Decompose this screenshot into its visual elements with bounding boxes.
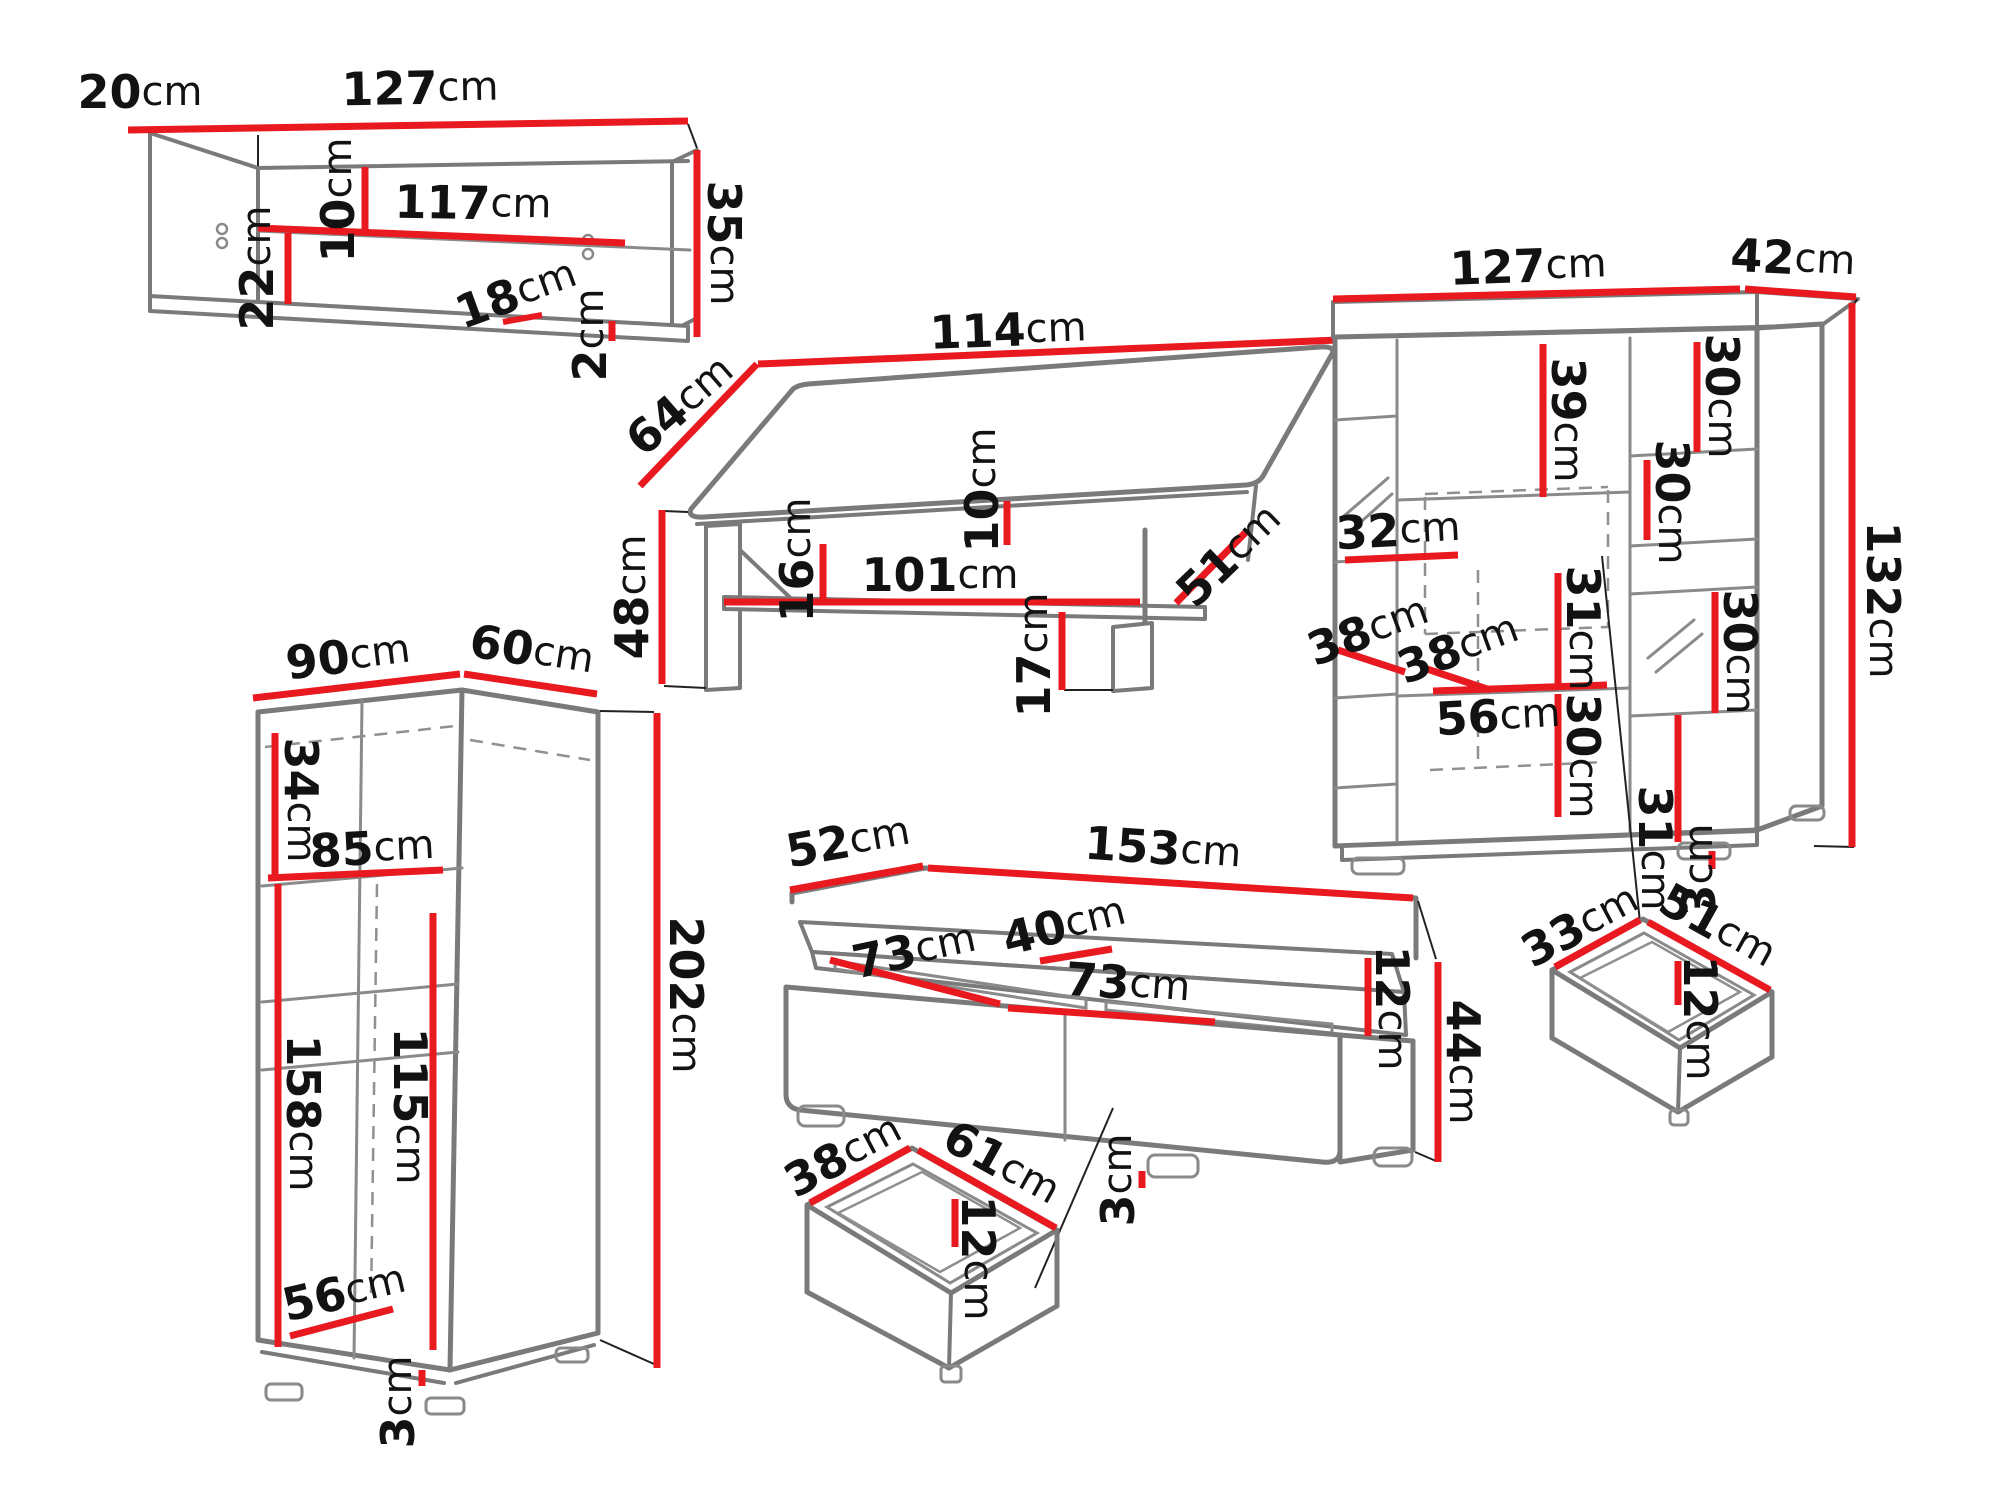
coffee-table-shelf-clearance-label: 16cm: [770, 498, 824, 623]
drawer-right-front: [1552, 1038, 1678, 1112]
bookcase-depth-label: 42cm: [1729, 228, 1857, 288]
bookcase: 127cm 42cm 132cm 39cm 30cm 30cm 32cm 38c…: [1300, 228, 1910, 932]
bookcase-30-lower-label: 30cm: [1556, 694, 1610, 819]
coffee-table: 114cm 64cm 48cm 16cm 101cm 10cm 51cm 17c…: [605, 300, 1338, 717]
hidden-line: [371, 884, 377, 1300]
extension-line: [1415, 1152, 1436, 1161]
wardrobe-door-split: [354, 701, 362, 1358]
wall-shelf: 20cm 127cm 117cm 10cm 22cm 35cm 18cm 2cm: [78, 60, 751, 382]
bookcase-30-right-label: 30cm: [1713, 590, 1767, 715]
tv-stand-foot: [1148, 1155, 1198, 1177]
furniture-dimensions-diagram: 20cm 127cm 117cm 10cm 22cm 35cm 18cm 2cm…: [0, 0, 2000, 1500]
hidden-line: [470, 740, 590, 760]
wardrobe-front-corner-edge: [450, 690, 462, 1370]
coffee-table-width-label: 114cm: [929, 300, 1088, 359]
extension-line: [664, 686, 706, 688]
wall-shelf-depth-label: 20cm: [78, 65, 203, 119]
coffee-table-shelf-depth-label: 51cm: [1165, 492, 1292, 618]
wall-shelf-width-label: 127cm: [341, 60, 499, 117]
extension-line: [664, 511, 688, 512]
extension-line: [688, 124, 697, 148]
drawer-left-height-label: 12cm: [951, 1196, 1005, 1321]
drawer-left: 38cm 61cm 12cm: [775, 1102, 1070, 1382]
wall-shelf-right-panel: [672, 150, 697, 331]
extension-line: [1418, 901, 1436, 959]
coffee-table-right-leg: [1113, 623, 1152, 691]
wardrobe-foot: [266, 1384, 302, 1400]
tv-stand-height-label: 44cm: [1436, 1000, 1490, 1125]
wardrobe-foot: [426, 1398, 464, 1414]
wall-shelf-height-label: 35cm: [697, 181, 751, 306]
extension-line: [1814, 846, 1854, 847]
wall-shelf-thickness-label: 2cm: [563, 289, 617, 382]
bookcase-side-panel: [1757, 324, 1822, 830]
wall-shelf-bottom-clearance-label: 22cm: [230, 206, 284, 331]
wall-shelf-inner-width-label: 117cm: [394, 175, 552, 232]
drawer-right-height-label: 12cm: [1673, 956, 1727, 1081]
coffee-table-leg-height-label: 17cm: [1007, 593, 1061, 718]
bookcase-31-mid-label: 31cm: [1556, 566, 1610, 691]
wardrobe-height-label: 202cm: [659, 917, 713, 1074]
bookcase-30-top-label: 30cm: [1695, 334, 1749, 459]
wardrobe: 90cm 60cm 34cm 85cm 158cm 115cm 56cm 3cm…: [253, 614, 713, 1449]
coffee-table-top-thickness-label: 10cm: [955, 428, 1009, 553]
wardrobe-right-inner-label: 115cm: [383, 1028, 437, 1185]
coffee-table-shelf-width-label: 101cm: [862, 548, 1019, 602]
bookcase-width-label: 127cm: [1449, 236, 1608, 295]
bookcase-30-upper-label: 30cm: [1645, 440, 1699, 565]
extension-line: [600, 1340, 654, 1364]
bookcase-39-label: 39cm: [1541, 358, 1595, 483]
bookcase-height-label: 132cm: [1856, 522, 1910, 679]
wall-shelf-top-clearance-label: 10cm: [311, 138, 365, 263]
drawer-left-front: [807, 1292, 949, 1368]
tv-stand-width-label: 153cm: [1083, 816, 1243, 881]
tv-stand-depth-label: 52cm: [782, 804, 914, 879]
diagram-canvas: 20cm 127cm 117cm 10cm 22cm 35cm 18cm 2cm…: [0, 0, 2000, 1500]
wall-shelf-width-dimension-line: [128, 121, 688, 130]
wardrobe-left-inner-label: 158cm: [276, 1035, 330, 1192]
drawer-left-corner: [949, 1293, 951, 1368]
wardrobe-foot-label: 3cm: [371, 1356, 425, 1449]
extension-line: [600, 711, 654, 712]
tv-stand-foot-label: 3cm: [1091, 1134, 1145, 1227]
tv-stand-shelf-height-label: 12cm: [1365, 946, 1419, 1071]
shelf-pin-icon: [583, 249, 593, 259]
coffee-table-height-label: 48cm: [605, 535, 659, 660]
